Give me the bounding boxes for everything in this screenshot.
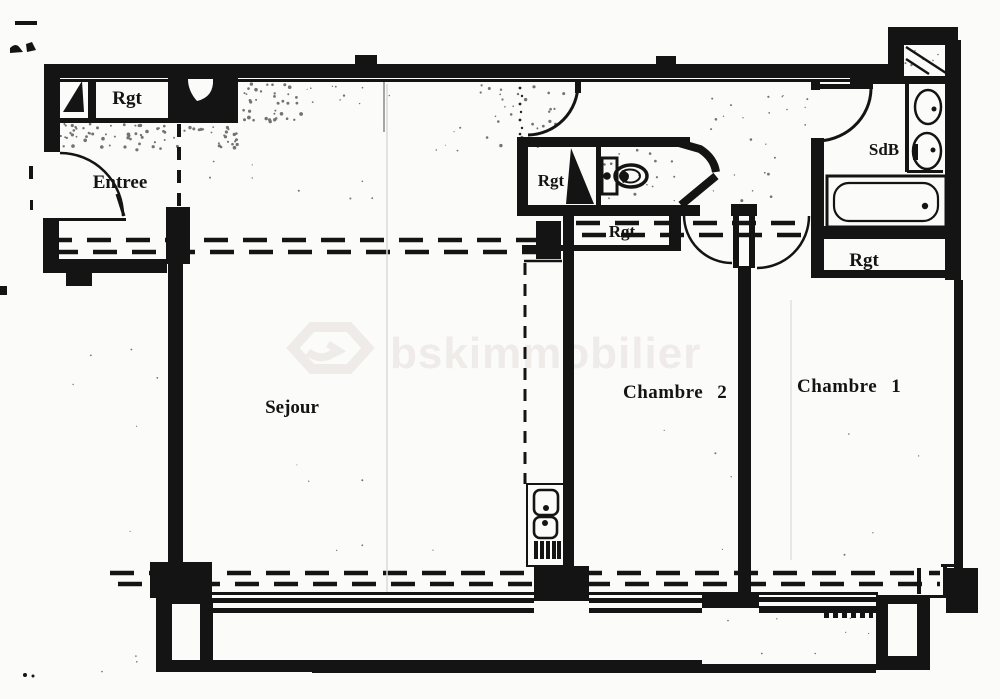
svg-text:Rgt: Rgt [609, 222, 636, 241]
svg-text:Rgt: Rgt [538, 171, 565, 190]
svg-text:Rgt: Rgt [849, 250, 879, 271]
svg-text:Entree: Entree [93, 172, 148, 193]
svg-text:Sejour: Sejour [265, 397, 319, 418]
svg-text:SdB: SdB [869, 140, 899, 159]
svg-text:bskimmobilier: bskimmobilier [390, 329, 701, 378]
svg-text:Rgt: Rgt [112, 88, 142, 109]
